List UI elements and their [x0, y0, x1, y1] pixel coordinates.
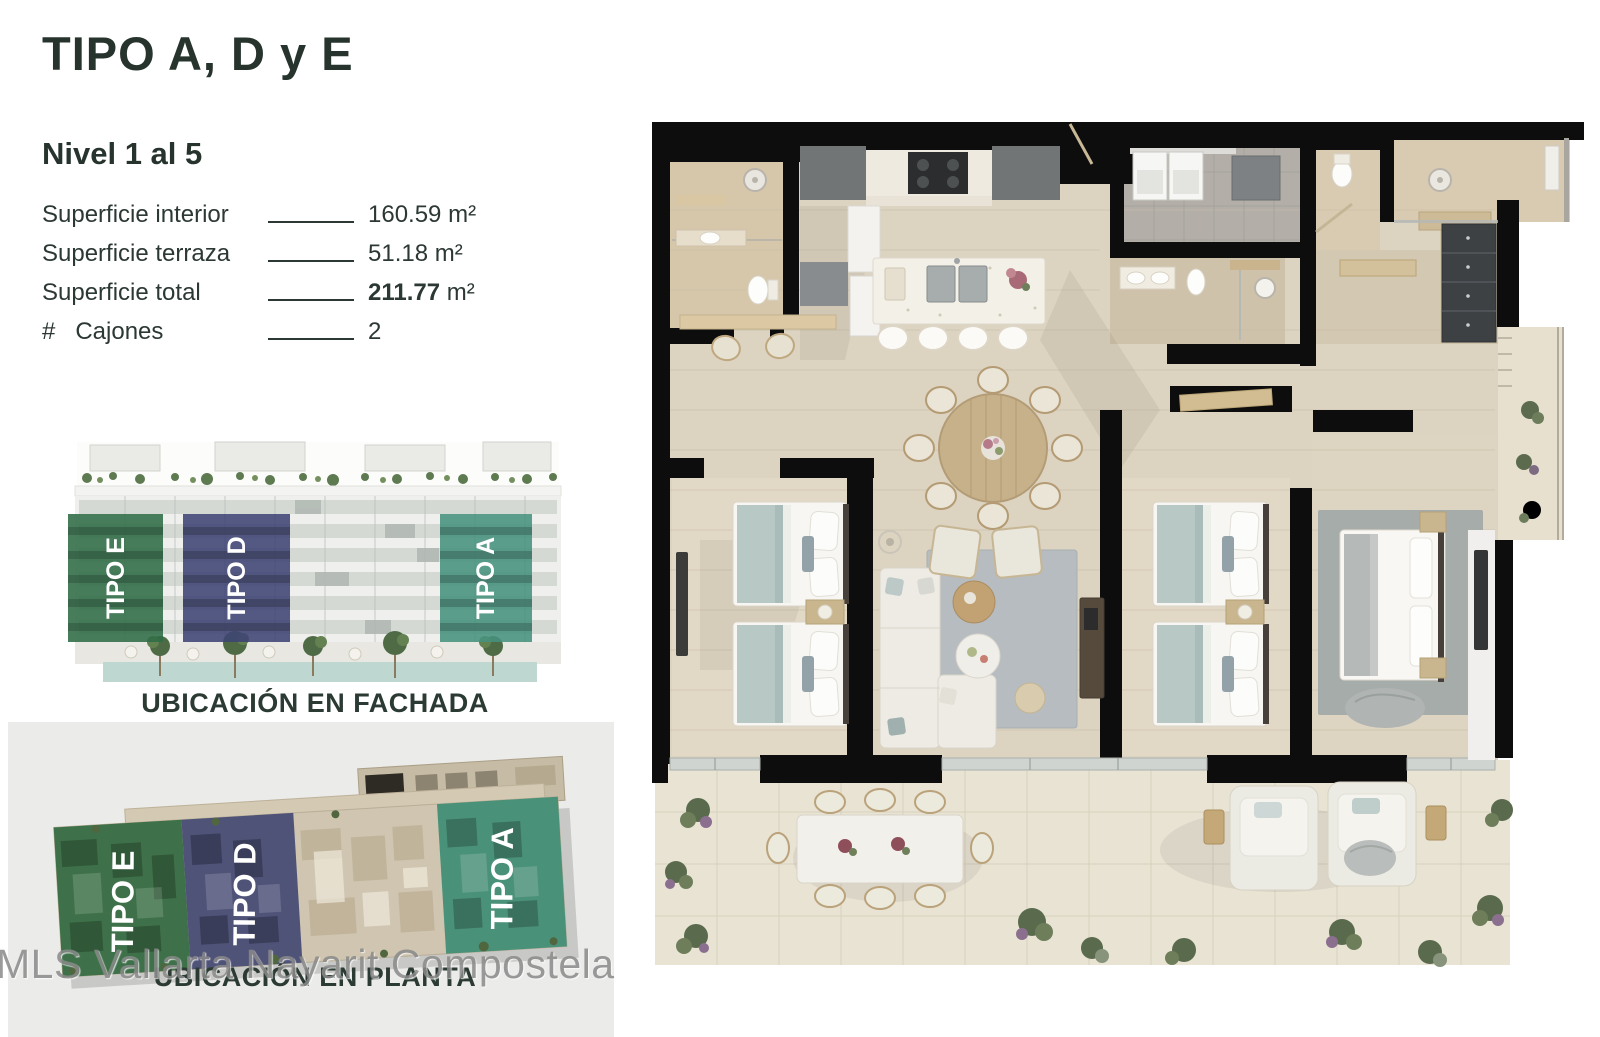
spec-list: Superficie interior 160.59 m² Superficie…: [42, 190, 522, 346]
side-table: [956, 634, 1000, 678]
toilet: [1187, 269, 1205, 295]
utility-box: [1232, 156, 1280, 200]
side-table: [1204, 810, 1224, 844]
spec-label: Superficie terraza: [42, 240, 268, 268]
toilet: [1332, 161, 1352, 187]
svg-text:TIPO D: TIPO D: [227, 842, 263, 946]
twin-bed: [733, 622, 849, 726]
floorplan-image: [640, 110, 1600, 1025]
lounge-chair: [1328, 782, 1416, 886]
nightstand: [1420, 658, 1446, 678]
twin-bed: [1153, 622, 1269, 726]
spec-row-interior: Superficie interior 160.59 m²: [42, 190, 522, 229]
tv: [1474, 550, 1488, 650]
level-subtitle: Nivel 1 al 5: [42, 136, 202, 172]
svg-text:TIPO E: TIPO E: [102, 537, 130, 619]
side-table: [1426, 806, 1446, 840]
facade-building: TIPO E TIPO D TIPO A: [68, 442, 561, 682]
dining-area: [904, 367, 1082, 529]
spec-label: Superficie total: [42, 279, 268, 307]
spec-label: Superficie interior: [42, 201, 268, 229]
page-title: TIPO A, D y E: [42, 26, 354, 81]
leader-line: [268, 338, 354, 340]
facade-overlay-tipo-e: TIPO E: [68, 514, 163, 642]
side-balcony: [1498, 327, 1563, 540]
svg-text:TIPO E: TIPO E: [105, 851, 141, 953]
pendant-light: [1255, 278, 1275, 298]
outdoor-dining-table: [797, 815, 963, 883]
svg-text:TIPO A: TIPO A: [472, 537, 500, 619]
twin-bed: [1153, 502, 1269, 606]
spec-value: 211.77 m²: [368, 279, 475, 307]
spec-row-total: Superficie total 211.77 m²: [42, 268, 522, 307]
toilet: [748, 276, 768, 304]
twin-bed: [733, 502, 849, 606]
svg-text:TIPO A: TIPO A: [484, 827, 520, 930]
leader-line: [268, 260, 354, 262]
armchair: [992, 526, 1043, 579]
watermark: MLS Vallarta Nayarit Compostela: [0, 941, 615, 988]
brochure-page: TIPO A, D y E Nivel 1 al 5 Superficie in…: [0, 0, 1600, 1037]
spec-row-cajones: # Cajones 2: [42, 307, 522, 346]
towel-rack: [1545, 146, 1559, 190]
spec-label: # Cajones: [42, 318, 268, 346]
spec-value: 160.59 m²: [368, 201, 476, 229]
pouf: [1015, 683, 1045, 713]
svg-text:TIPO D: TIPO D: [223, 536, 251, 619]
lounge-chair: [1230, 786, 1318, 890]
facade-overlay-tipo-a: TIPO A: [440, 514, 532, 642]
nightstand: [1420, 512, 1446, 532]
armchair: [929, 525, 981, 579]
leader-line: [268, 299, 354, 301]
leader-line: [268, 221, 354, 223]
facade-overlay-tipo-d: TIPO D: [183, 514, 290, 642]
dressing-bench: [1340, 260, 1416, 276]
spec-row-terraza: Superficie terraza 51.18 m²: [42, 229, 522, 268]
spec-value: 2: [368, 318, 381, 346]
siteplan-overlay-tipo-a: TIPO A: [437, 797, 567, 954]
facade-image: TIPO E TIPO D TIPO A: [65, 436, 570, 684]
spec-value: 51.18 m²: [368, 240, 463, 268]
facade-caption: UBICACIÓN EN FACHADA: [0, 688, 630, 719]
